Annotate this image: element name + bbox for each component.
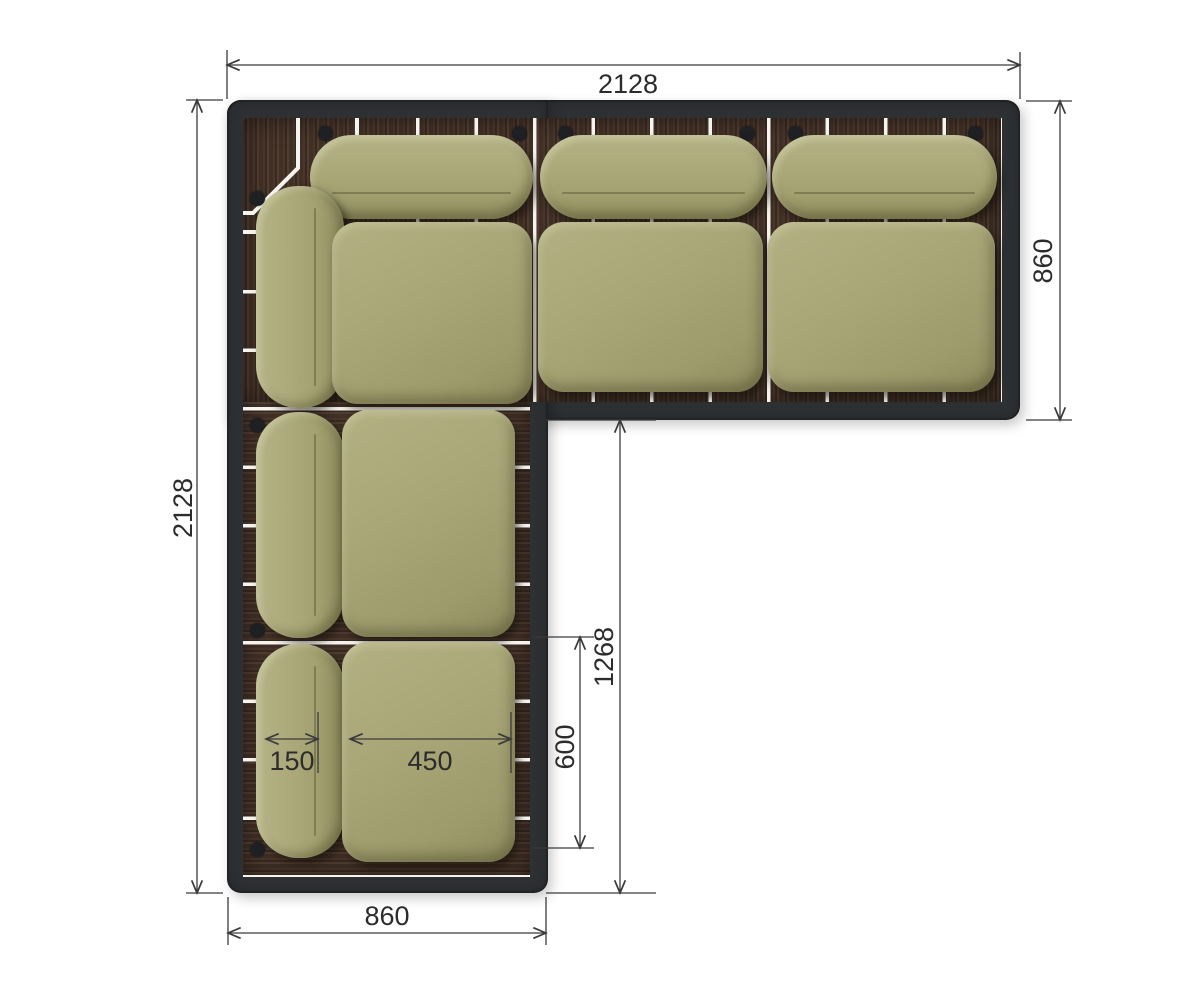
dim-label-2128-left: 2128 — [168, 478, 198, 538]
side-cushion-3 — [256, 644, 344, 858]
dim-label-2128-top: 2128 — [598, 69, 658, 99]
sofa-plan-drawing: 2128 860 2128 860 1268 600 — [0, 0, 1200, 1000]
fastener-dot — [250, 623, 265, 638]
side-cushion-1 — [256, 186, 344, 408]
back-cushion-2 — [540, 135, 767, 219]
back-cushion-1 — [310, 135, 533, 219]
dim-label-860-bottom: 860 — [364, 901, 409, 931]
fastener-dot — [512, 126, 527, 141]
dim-width-bottom: 860 — [228, 897, 546, 945]
dim-label-600: 600 — [550, 724, 580, 769]
seat-cushion-left-3 — [342, 642, 515, 862]
dim-label-1268: 1268 — [589, 627, 619, 687]
dim-label-860-right: 860 — [1028, 238, 1058, 283]
seat-cushion-left-2 — [342, 410, 515, 637]
seat-cushion-top-2 — [538, 222, 763, 392]
corner-seat-cushion — [332, 222, 532, 404]
dim-depth-right: 860 — [1026, 101, 1072, 420]
back-cushion-3 — [772, 135, 997, 219]
seat-cushion-top-3 — [768, 222, 995, 392]
fastener-dot — [318, 126, 333, 141]
side-cushion-2 — [256, 412, 344, 638]
fastener-dot — [250, 842, 265, 857]
dim-overall-depth-left: 2128 — [168, 100, 223, 893]
dim-overall-width-top: 2128 — [227, 50, 1020, 99]
dim-chaise-length: 1268 — [546, 420, 656, 893]
